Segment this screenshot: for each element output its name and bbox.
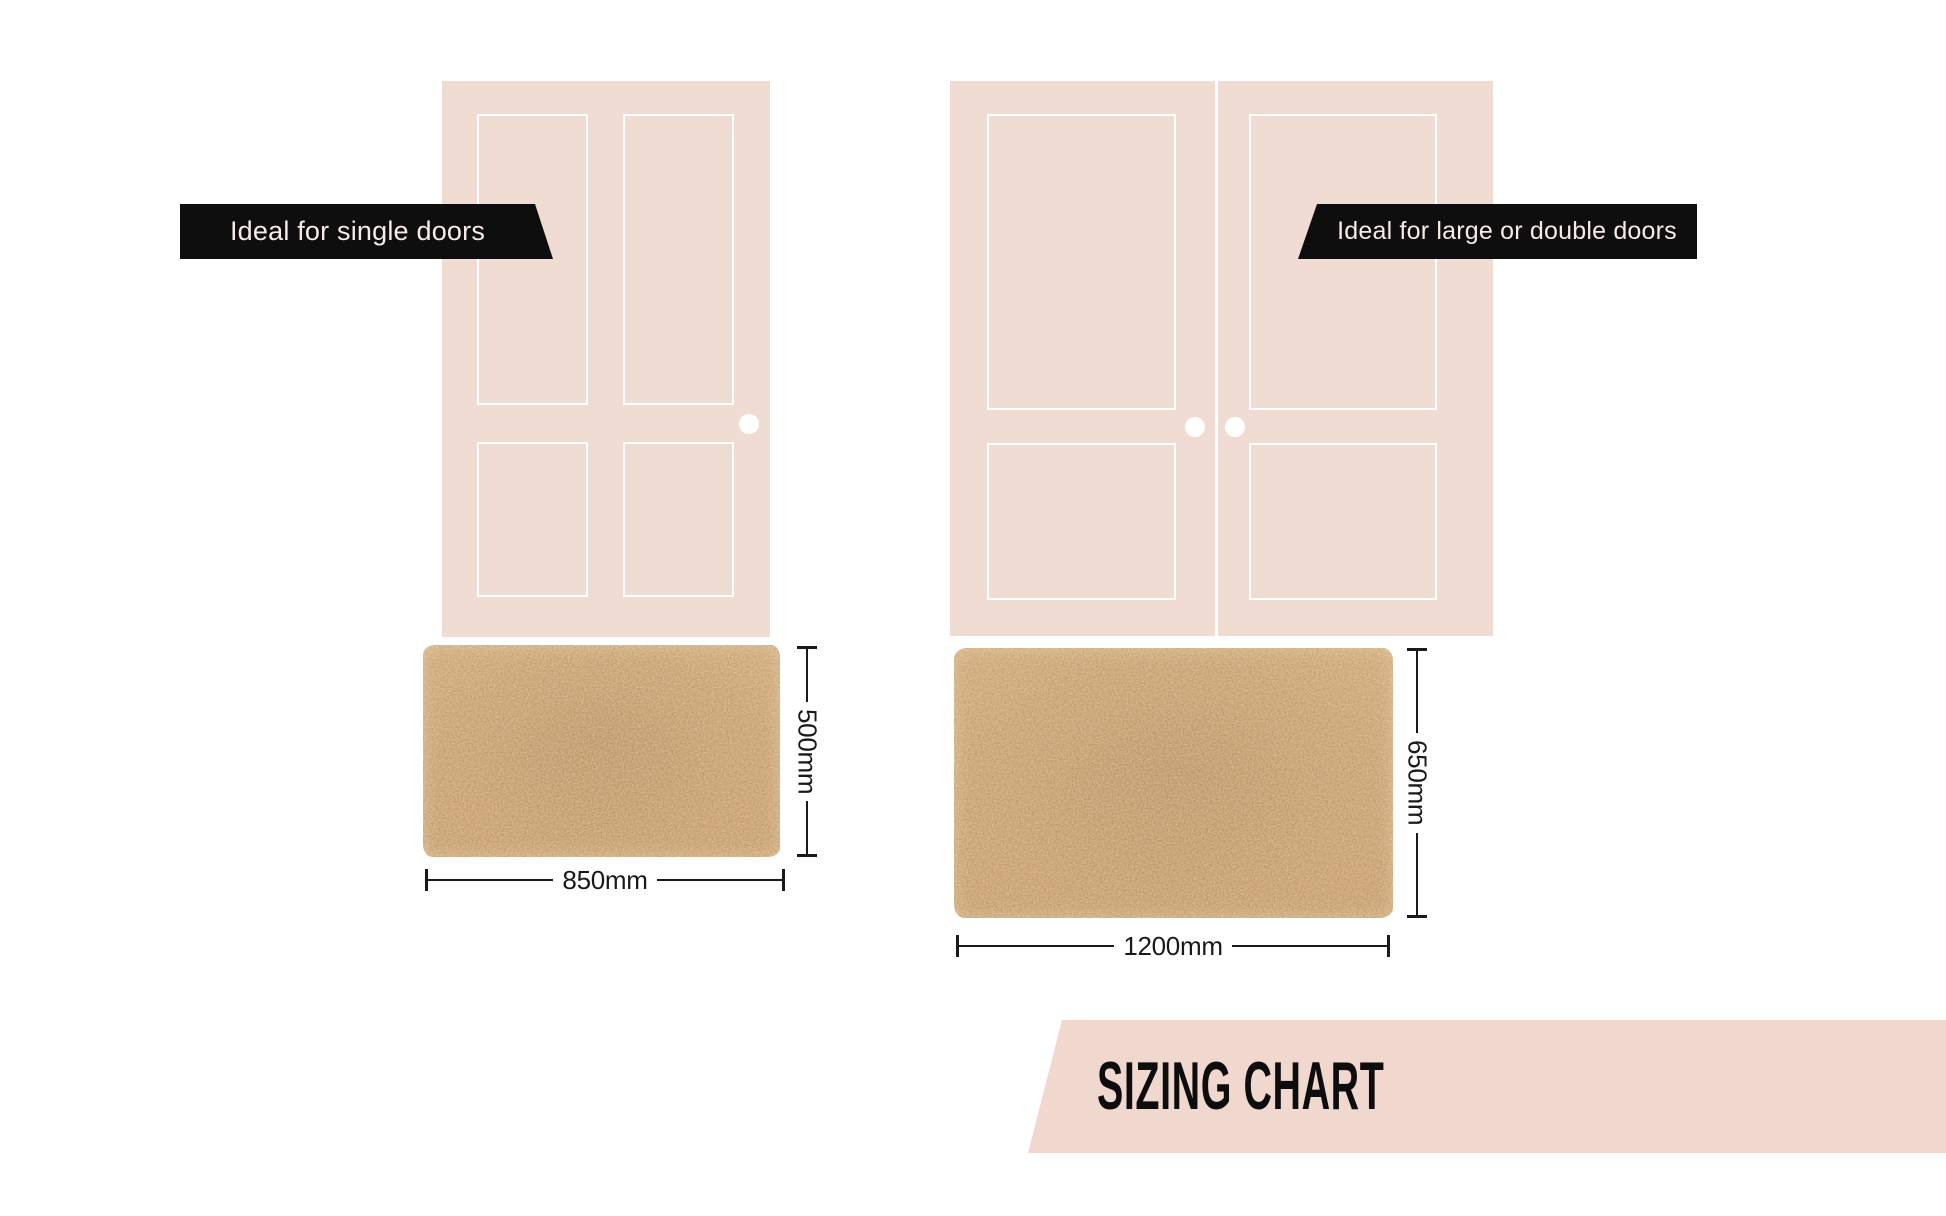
dimension-line xyxy=(657,879,782,881)
double-door-ribbon-label: Ideal for large or double doors xyxy=(1318,217,1677,246)
double-mat-width-label: 1200mm xyxy=(1123,931,1222,962)
dimension-line xyxy=(1232,945,1387,947)
double-mat-width-dimension: 1200mm xyxy=(956,935,1390,957)
sizing-chart-page: Ideal for single doors Ideal for large o… xyxy=(0,0,1946,1216)
dimension-tick xyxy=(1387,935,1390,957)
door-panel xyxy=(1249,443,1437,600)
door-panel xyxy=(987,114,1176,410)
door-panel xyxy=(623,114,734,405)
dimension-line xyxy=(959,945,1114,947)
single-mat-width-label: 850mm xyxy=(562,865,647,896)
coir-texture xyxy=(423,645,780,857)
sizing-chart-banner: SIZING CHART xyxy=(1028,1020,1946,1153)
doorknob-icon xyxy=(1185,417,1205,437)
double-door-divider xyxy=(1215,81,1218,636)
double-mat-height-label: 650mm xyxy=(1402,740,1433,825)
door-panel xyxy=(477,442,588,597)
door-panel xyxy=(987,443,1176,600)
doormat-double xyxy=(954,648,1393,918)
page-title: SIZING CHART xyxy=(1097,1020,1384,1153)
single-mat-width-dimension: 850mm xyxy=(425,869,785,891)
door-panel xyxy=(623,442,734,597)
dimension-tick xyxy=(782,869,785,891)
dimension-line xyxy=(806,801,808,854)
single-door-ribbon: Ideal for single doors xyxy=(180,204,553,259)
dimension-tick xyxy=(797,854,817,857)
single-mat-height-label: 500mm xyxy=(792,709,823,794)
single-door-ribbon-label: Ideal for single doors xyxy=(230,216,503,247)
dimension-line xyxy=(1416,833,1418,915)
coir-texture xyxy=(954,648,1393,918)
double-door-ribbon: Ideal for large or double doors xyxy=(1298,204,1697,259)
doorknob-icon xyxy=(1225,417,1245,437)
single-mat-height-dimension: 500mm xyxy=(796,646,818,857)
dimension-line xyxy=(428,879,553,881)
dimension-tick xyxy=(1407,915,1427,918)
dimension-line xyxy=(1416,651,1418,733)
doormat-single xyxy=(423,645,780,857)
double-mat-height-dimension: 650mm xyxy=(1406,648,1428,918)
door-panel xyxy=(1249,114,1437,410)
door-panel xyxy=(477,114,588,405)
dimension-line xyxy=(806,649,808,702)
doorknob-icon xyxy=(739,414,759,434)
